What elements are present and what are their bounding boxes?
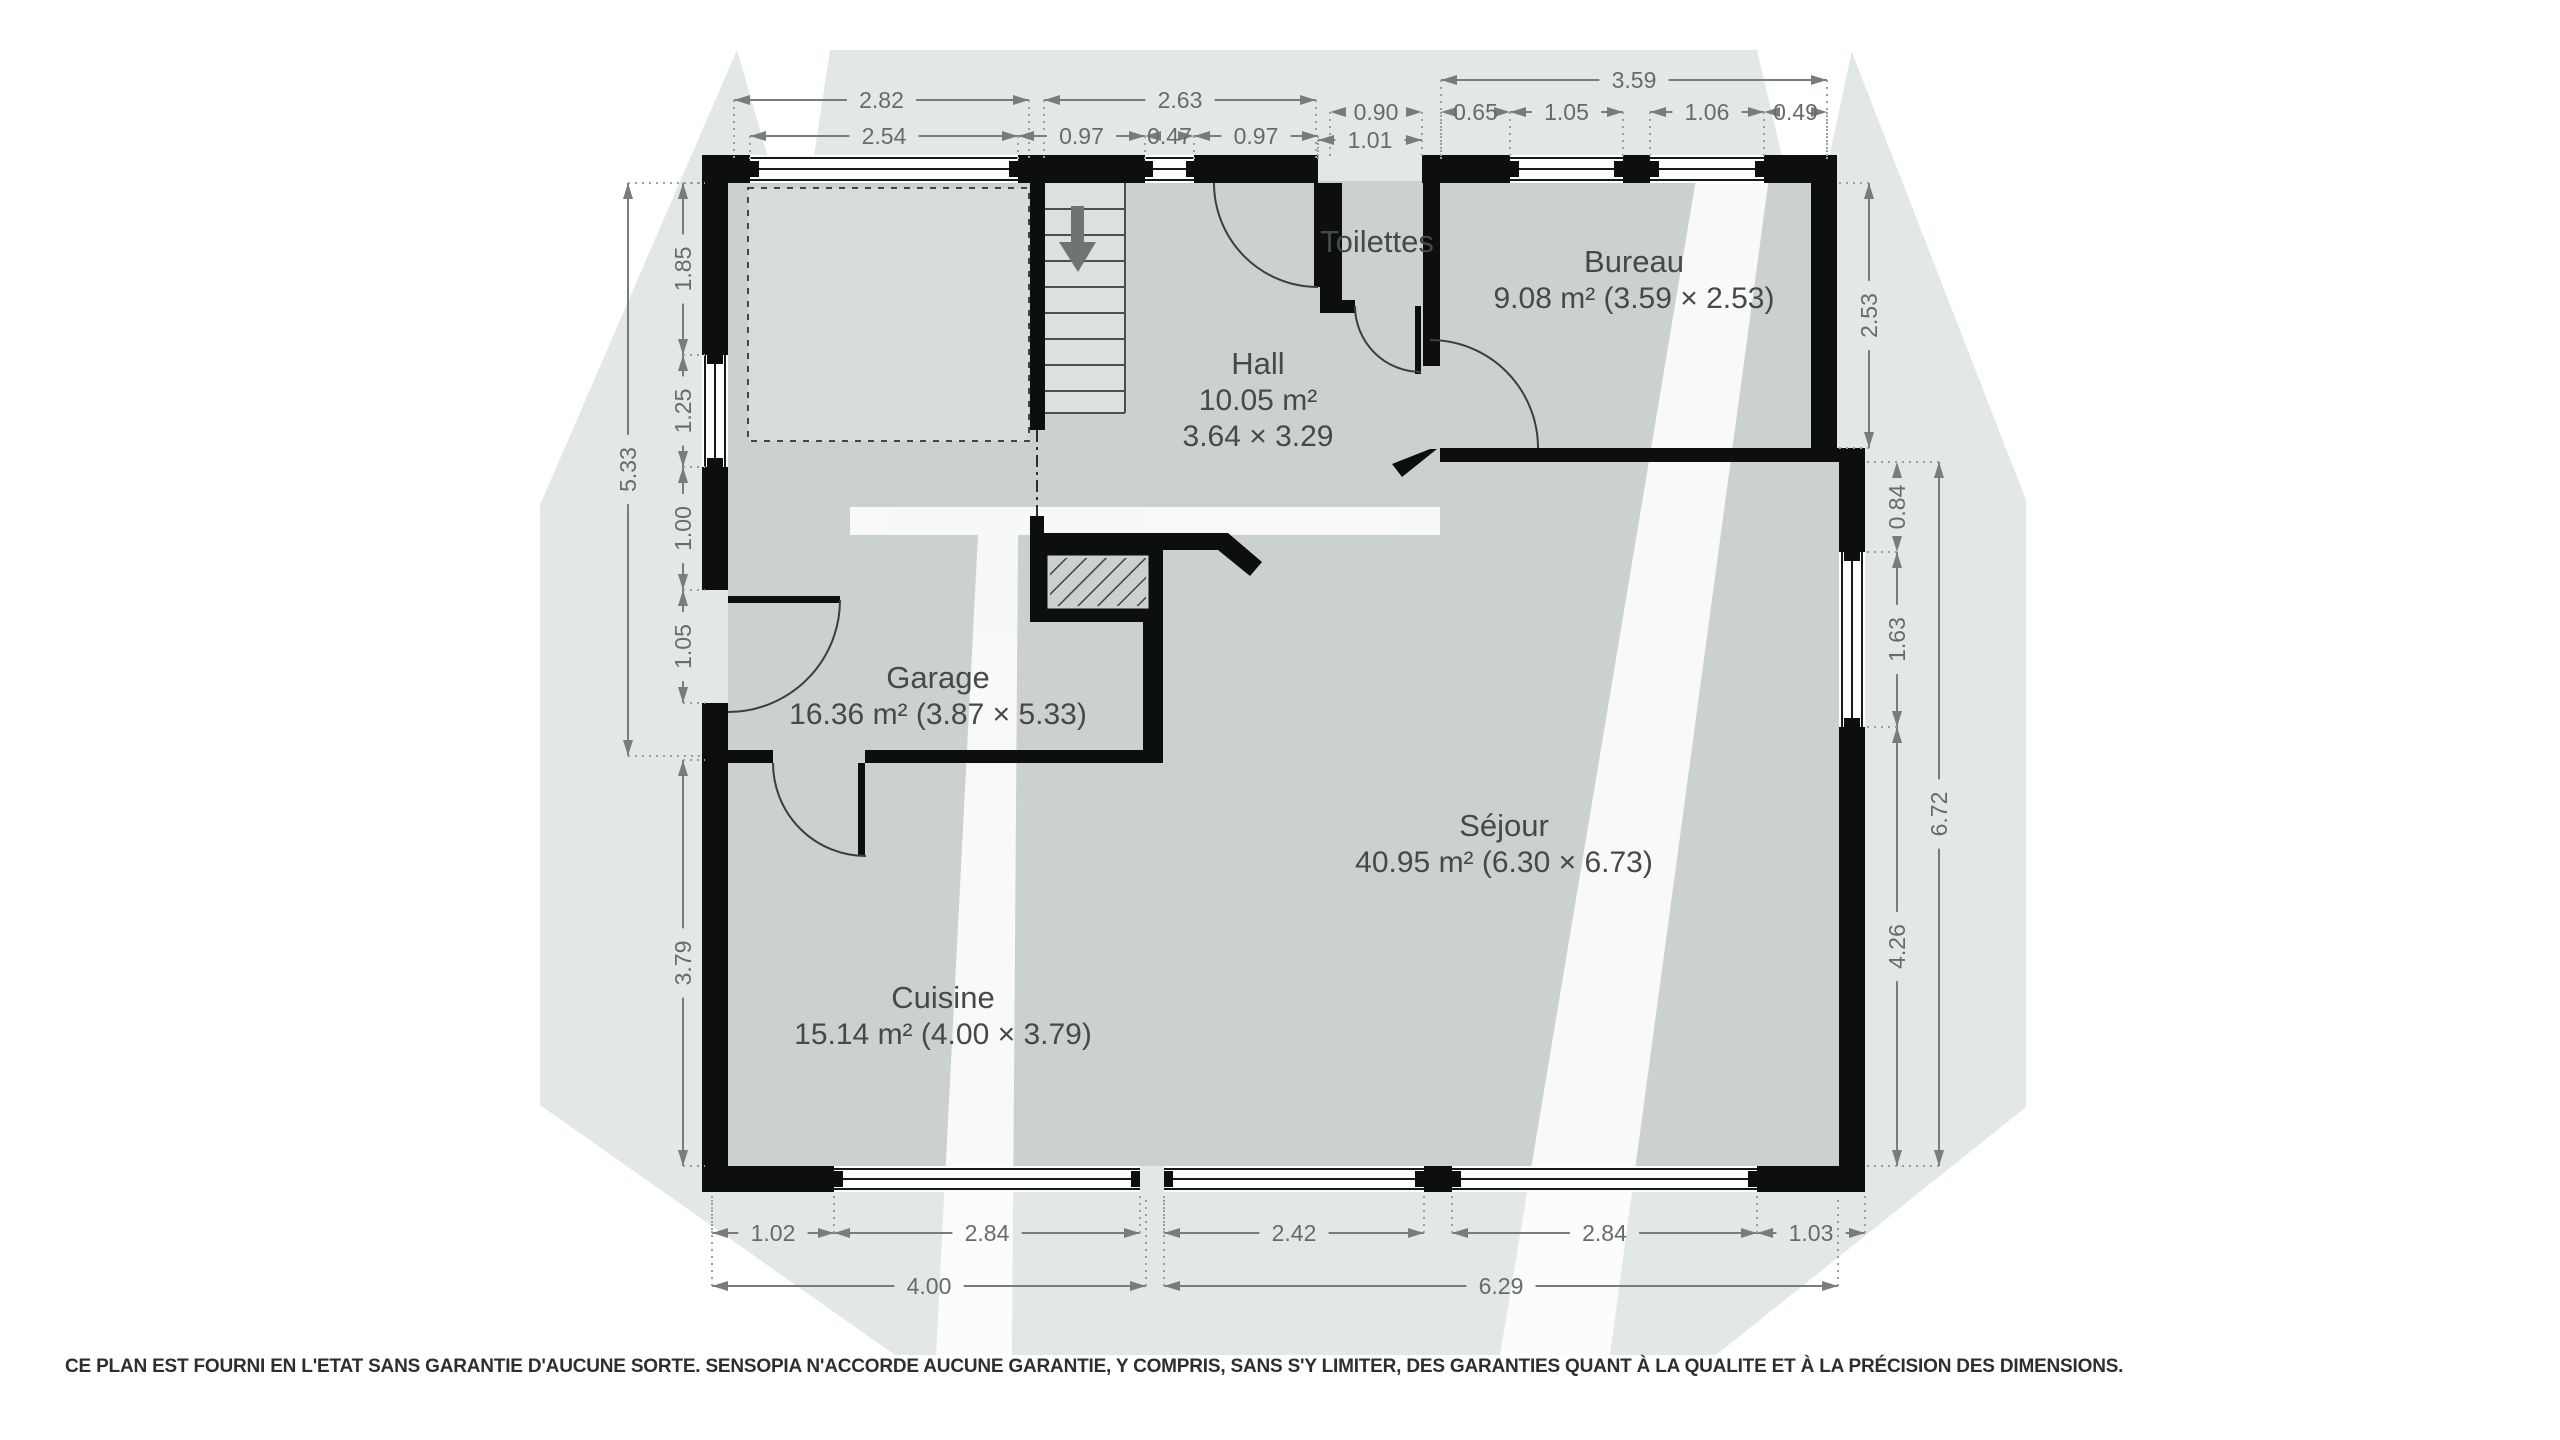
room-label-hall: Hall [1231, 346, 1284, 381]
dimension-label: 0.47 [1147, 123, 1192, 149]
wall [702, 1166, 834, 1192]
room-label-cuisine: Cuisine [891, 980, 994, 1015]
wall-stairs [1030, 183, 1045, 430]
window-sejour-bottom-1 [1164, 1166, 1424, 1192]
wall [1623, 155, 1650, 183]
dimension-label: 3.59 [1612, 67, 1657, 93]
window-bureau-top-2 [1650, 155, 1764, 183]
ceiling-opening-area [748, 188, 1029, 441]
window-stairs-top [1145, 155, 1194, 183]
room-size-hall: 3.64 × 3.29 [1183, 420, 1334, 453]
door-leaf-toilettes [1415, 306, 1421, 374]
dimension-label: 2.53 [1856, 293, 1882, 338]
dimension-label: 2.84 [965, 1220, 1010, 1246]
dimension-label: 2.63 [1158, 87, 1203, 113]
wall [702, 467, 728, 590]
floor-plan-page: 2.822.633.592.540.970.470.970.901.010.65… [0, 0, 2560, 1440]
door-leaf-bureau [1423, 340, 1440, 366]
floor-plan-canvas: 2.822.633.592.540.970.470.970.901.010.65… [0, 0, 2560, 1440]
dimension-label: 1.02 [751, 1220, 796, 1246]
wall-toilettes-bureau [1423, 183, 1440, 340]
dimension-label: 0.65 [1453, 99, 1498, 125]
dimension-label: 1.06 [1685, 99, 1730, 125]
room-label-sejour: Séjour [1459, 808, 1549, 843]
window-garage-top [750, 155, 1018, 183]
dimension-label: 0.97 [1059, 123, 1104, 149]
room-label-bureau: Bureau [1584, 244, 1684, 279]
chimney [1044, 552, 1152, 612]
wall [1194, 155, 1318, 183]
dimension-label: 3.79 [670, 941, 696, 986]
dimension-label: 1.85 [670, 247, 696, 292]
wall-garage-cuisine-b [865, 750, 1143, 763]
room-detail-cuisine: 15.14 m² (4.00 × 3.79) [794, 1018, 1092, 1051]
dimension-label: 2.84 [1582, 1220, 1627, 1246]
room-area-hall: 10.05 m² [1199, 384, 1317, 417]
dimension-label: 5.33 [615, 447, 641, 492]
wall [1839, 727, 1865, 1192]
wall [1811, 155, 1837, 462]
window-garage-left [702, 355, 728, 467]
dimension-label: 1.05 [670, 624, 696, 669]
wall [1018, 155, 1145, 183]
wall-garage-cuisine-a [702, 750, 773, 763]
dimension-label: 1.25 [670, 389, 696, 434]
dimension-label: 1.00 [670, 506, 696, 551]
room-detail-garage: 16.36 m² (3.87 × 5.33) [789, 698, 1087, 731]
room-detail-sejour: 40.95 m² (6.30 × 6.73) [1355, 846, 1653, 879]
room-label-toilettes: Toilettes [1320, 224, 1434, 259]
window-sejour-bottom-2 [1452, 1166, 1757, 1192]
dimension-label: 4.26 [1884, 924, 1910, 969]
door-leaf-garage [728, 596, 840, 603]
dimension-label: 6.72 [1926, 792, 1952, 837]
wall [1839, 462, 1865, 552]
dimension-label: 2.54 [862, 123, 907, 149]
camera-band-horizontal [850, 507, 1440, 535]
dimension-label: 2.42 [1272, 1220, 1317, 1246]
wall [702, 155, 728, 355]
dimension-label: 1.01 [1348, 127, 1393, 153]
wall-hall-bottom [1030, 533, 1228, 550]
dimension-label: 4.00 [907, 1273, 952, 1299]
dimension-label: 1.03 [1789, 1220, 1834, 1246]
dimension-label: 2.82 [859, 87, 904, 113]
dimension-label: 0.84 [1884, 484, 1910, 529]
window-bureau-top-1 [1510, 155, 1623, 183]
window-sejour-right [1839, 552, 1865, 727]
dimension-label: 6.29 [1479, 1273, 1524, 1299]
wall [1422, 155, 1510, 183]
room-label-garage: Garage [886, 660, 989, 695]
dimension-label: 1.05 [1544, 99, 1589, 125]
window-cuisine-bottom [834, 1166, 1140, 1192]
wall [1811, 448, 1865, 462]
disclaimer-text: CE PLAN EST FOURNI EN L'ETAT SANS GARANT… [65, 1355, 2123, 1377]
chimney-hatch [1050, 558, 1146, 606]
room-detail-bureau: 9.08 m² (3.59 × 2.53) [1494, 282, 1775, 315]
wall [702, 703, 728, 1192]
dimension-label: 0.97 [1234, 123, 1279, 149]
wall-bureau-bottom [1440, 448, 1811, 462]
wall-toilettes-bottom [1320, 300, 1355, 313]
stairwell-floor [1045, 181, 1125, 413]
dimension-label: 0.49 [1773, 99, 1818, 125]
dimension-label: 1.63 [1884, 617, 1910, 662]
dimension-label: 0.90 [1354, 99, 1399, 125]
door-leaf-cuisine [858, 763, 865, 856]
wall [1424, 1166, 1452, 1192]
